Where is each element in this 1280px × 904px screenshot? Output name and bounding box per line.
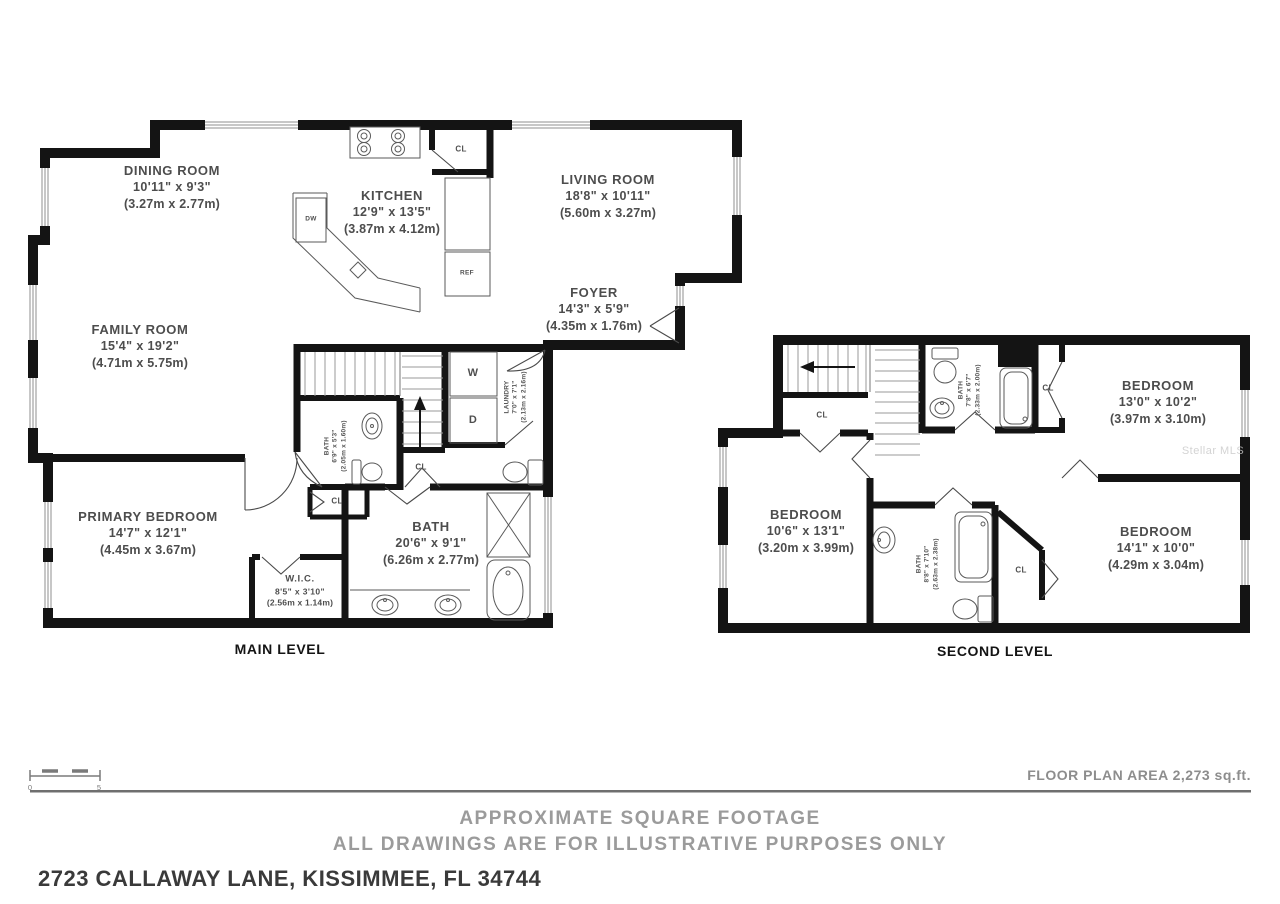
- sink2-icon: [930, 398, 954, 418]
- property-address: 2723 CALLAWAY LANE, KISSIMMEE, FL 34744: [38, 866, 541, 892]
- small-bath-door: [295, 452, 322, 487]
- bath3-door: [935, 488, 972, 505]
- room-name: FAMILY ROOM: [92, 321, 189, 338]
- closet-label: CL: [816, 411, 827, 420]
- refrigerator-label: REF: [460, 270, 474, 277]
- room-label-bedroom-1: BEDROOM 13'0" x 10'2" (3.97m x 3.10m): [1110, 377, 1206, 427]
- disclaimer-line-2: ALL DRAWINGS ARE FOR ILLUSTRATIVE PURPOS…: [0, 834, 1280, 856]
- room-dims-ft: 10'6" x 13'1": [758, 523, 854, 540]
- laundry-door: [505, 421, 533, 445]
- bathtub3-icon: [955, 512, 992, 582]
- dishwasher-label: DW: [305, 216, 316, 223]
- scale-start-label: 0: [28, 783, 32, 792]
- main-level-title: MAIN LEVEL: [235, 641, 326, 657]
- room-label-kitchen: KITCHEN 12'9" x 13'5" (3.87m x 4.12m): [344, 187, 440, 237]
- room-dims-m: (6.26m x 2.77m): [383, 552, 479, 569]
- room-label-family: FAMILY ROOM 15'4" x 19'2" (4.71m x 5.75m…: [92, 321, 189, 371]
- chase-void: [998, 335, 1035, 367]
- powder-toilet-icon: [352, 460, 382, 484]
- room-dims-m: (5.60m x 3.27m): [560, 205, 656, 222]
- closet-label: CL: [1015, 566, 1026, 575]
- room-name: BATH: [383, 518, 479, 535]
- room-name: W.I.C.: [267, 574, 333, 587]
- room-name: BEDROOM: [1110, 377, 1206, 394]
- stair-closet-door: [800, 433, 840, 452]
- scale-end-label: 5: [97, 783, 101, 792]
- room-label-bedroom-2: BEDROOM 10'6" x 13'1" (3.20m x 3.99m): [758, 506, 854, 556]
- room-dims-ft: 14'1" x 10'0": [1108, 540, 1204, 557]
- stair-arrow-down: [800, 361, 814, 373]
- floor-plan-area-note: FLOOR PLAN AREA 2,273 sq.ft.: [1027, 767, 1251, 783]
- dryer-label: D: [469, 414, 477, 426]
- room-dims-m: (4.71m x 5.75m): [92, 355, 189, 372]
- room-label-bath-lower: BATH 8'8" x 7'10" (2.63m x 2.38m): [915, 538, 940, 589]
- second-bath-fixtures: [873, 348, 1032, 622]
- closet-label: CL: [331, 497, 342, 506]
- powder-sink-icon: [362, 413, 382, 439]
- room-label-dining: DINING ROOM 10'11" x 9'3" (3.27m x 2.77m…: [124, 162, 220, 212]
- sink3-icon: [873, 527, 895, 553]
- toilet3-icon: [953, 596, 993, 622]
- room-dims-m: (3.97m x 3.10m): [1110, 411, 1206, 428]
- toilet-icon: [503, 460, 543, 485]
- foyer-hall-door: [507, 350, 545, 371]
- room-label-powder-bath: BATH 6'9" x 5'3" (2.05m x 1.60m): [323, 420, 348, 471]
- kitchen-counter: [445, 178, 490, 250]
- bedroom-left-door: [852, 440, 870, 478]
- washer-label: W: [468, 367, 479, 379]
- closet-label: CL: [1042, 384, 1053, 393]
- room-dims-ft: 7'0" x 7'1": [512, 371, 520, 422]
- room-label-primary-bedroom: PRIMARY BEDROOM 14'7" x 12'1" (4.45m x 3…: [78, 508, 218, 558]
- double-sink-icon: [350, 590, 470, 615]
- toilet2-icon: [932, 348, 958, 383]
- stove-icon: [350, 127, 420, 158]
- room-name: DINING ROOM: [124, 162, 220, 179]
- room-dims-m: (2.56m x 1.14m): [267, 597, 333, 608]
- room-dims-ft: 18'8" x 10'11": [560, 188, 656, 205]
- room-dims-ft: 10'11" x 9'3": [124, 179, 220, 196]
- second-level-title: SECOND LEVEL: [937, 643, 1053, 659]
- room-name: LIVING ROOM: [560, 171, 656, 188]
- room-dims-ft: 12'9" x 13'5": [344, 204, 440, 221]
- room-name: BATH: [957, 364, 965, 415]
- room-name: BATH: [915, 538, 923, 589]
- room-label-main-bath: BATH 20'6" x 9'1" (6.26m x 2.77m): [383, 518, 479, 568]
- room-label-living: LIVING ROOM 18'8" x 10'11" (5.60m x 3.27…: [560, 171, 656, 221]
- room-name: LAUNDRY: [503, 371, 511, 422]
- room-name: BEDROOM: [1108, 523, 1204, 540]
- bathtub-icon: [487, 560, 530, 620]
- room-dims-m: (3.27m x 2.77m): [124, 196, 220, 213]
- room-name: PRIMARY BEDROOM: [78, 508, 218, 525]
- room-name: KITCHEN: [344, 187, 440, 204]
- room-name: BEDROOM: [758, 506, 854, 523]
- room-dims-m: (2.05m x 1.60m): [340, 420, 348, 471]
- room-dims-ft: 15'4" x 19'2": [92, 338, 189, 355]
- closet-label: CL: [415, 463, 426, 472]
- divider-line: [30, 790, 1251, 793]
- room-dims-ft: 7'8" x 6'7": [966, 364, 974, 415]
- room-dims-m: (2.33m x 2.00m): [974, 364, 982, 415]
- room-dims-m: (2.13m x 2.16m): [520, 371, 528, 422]
- room-dims-ft: 8'8" x 7'10": [924, 538, 932, 589]
- room-label-bath-upper: BATH 7'8" x 6'7" (2.33m x 2.00m): [957, 364, 982, 415]
- room-dims-m: (4.29m x 3.04m): [1108, 557, 1204, 574]
- shower-icon: [487, 493, 530, 557]
- laundry-fixtures: [450, 352, 497, 443]
- wic-door: [262, 557, 300, 574]
- room-label-bedroom-3: BEDROOM 14'1" x 10'0" (4.29m x 3.04m): [1108, 523, 1204, 573]
- disclaimer-line-1: APPROXIMATE SQUARE FOOTAGE: [0, 808, 1280, 830]
- room-label-wic: W.I.C. 8'5" x 3'10" (2.56m x 1.14m): [267, 574, 333, 609]
- bathtub2-icon: [1000, 368, 1032, 428]
- room-dims-m: (3.20m x 3.99m): [758, 540, 854, 557]
- bedroom-tr-door: [1062, 460, 1098, 478]
- entry-double-door: [650, 308, 679, 343]
- primary-door-arc: [245, 458, 297, 510]
- stair-arrow-up: [414, 396, 426, 410]
- room-label-foyer: FOYER 14'3" x 5'9" (4.35m x 1.76m): [546, 284, 642, 334]
- room-dims-ft: 14'7" x 12'1": [78, 525, 218, 542]
- room-dims-ft: 14'3" x 5'9": [546, 301, 642, 318]
- closet-label: CL: [455, 145, 466, 154]
- kitchen-closet-door: [432, 150, 458, 172]
- room-label-laundry: LAUNDRY 7'0" x 7'1" (2.13m x 2.16m): [503, 371, 528, 422]
- staircase-second: [788, 345, 920, 455]
- room-name: BATH: [323, 420, 331, 471]
- room-dims-m: (4.45m x 3.67m): [78, 542, 218, 559]
- room-dims-ft: 8'5" x 3'10": [267, 586, 333, 597]
- room-dims-ft: 6'9" x 5'3": [332, 420, 340, 471]
- room-dims-ft: 13'0" x 10'2": [1110, 394, 1206, 411]
- floor-plan-page: DINING ROOM 10'11" x 9'3" (3.27m x 2.77m…: [0, 0, 1280, 904]
- room-dims-ft: 20'6" x 9'1": [383, 535, 479, 552]
- mls-watermark: Stellar MLS: [1182, 445, 1244, 457]
- scale-bar: [30, 770, 100, 781]
- room-dims-m: (3.87m x 4.12m): [344, 221, 440, 238]
- room-dims-m: (4.35m x 1.76m): [546, 318, 642, 335]
- room-dims-m: (2.63m x 2.38m): [932, 538, 940, 589]
- room-name: FOYER: [546, 284, 642, 301]
